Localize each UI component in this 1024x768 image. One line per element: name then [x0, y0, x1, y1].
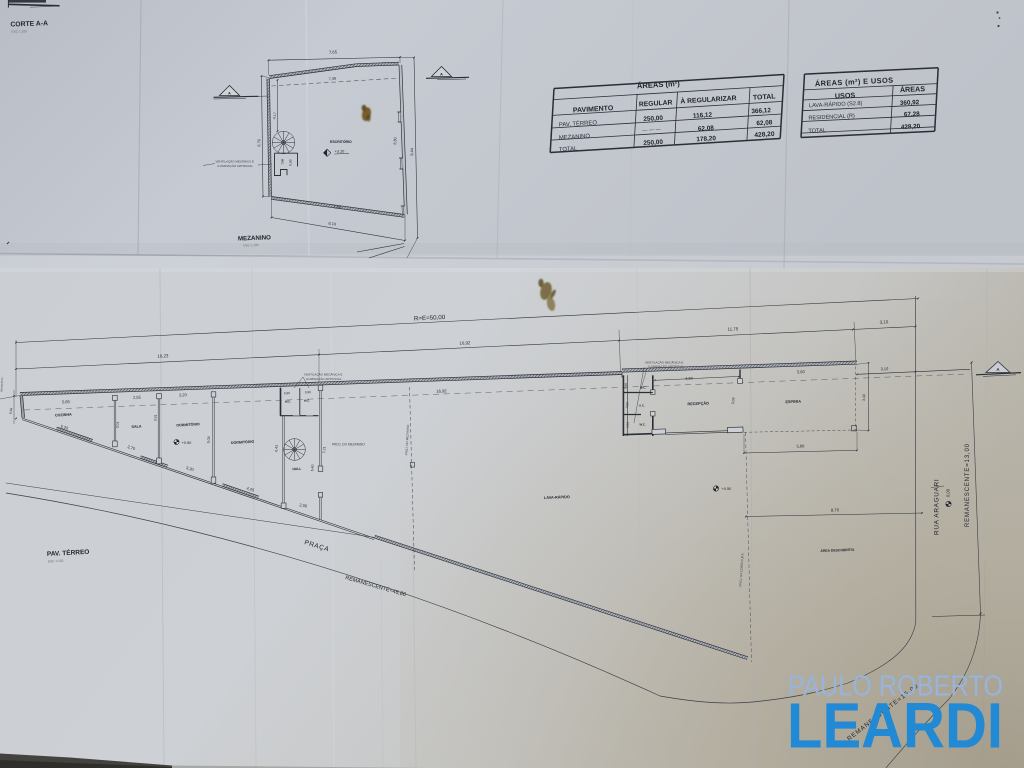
- svg-text:RECEPÇÃO: RECEPÇÃO: [687, 401, 709, 407]
- svg-text:MEZANINO: MEZANINO: [238, 234, 271, 242]
- svg-text:62,08: 62,08: [756, 119, 773, 127]
- svg-text:+0.50: +0.50: [722, 486, 733, 491]
- svg-text:2,55: 2,55: [133, 394, 142, 399]
- svg-text:W.C.: W.C.: [281, 159, 285, 165]
- svg-text:W.C.: W.C.: [640, 386, 646, 390]
- svg-text:6,79: 6,79: [256, 139, 261, 147]
- svg-text:3,40: 3,40: [862, 394, 866, 401]
- svg-text:6,43: 6,43: [274, 445, 279, 452]
- svg-text:0,90: 0,90: [305, 390, 312, 394]
- svg-text:4,30: 4,30: [685, 376, 694, 381]
- svg-text:9,44: 9,44: [409, 147, 414, 156]
- svg-text:TOTAL: TOTAL: [808, 128, 826, 135]
- svg-text:VENTILAÇÃO MECÂNICA E: VENTILAÇÃO MECÂNICA E: [645, 359, 683, 364]
- svg-text:A: A: [440, 71, 443, 76]
- svg-text:REMANESCENTE=13,00: REMANESCENTE=13,00: [965, 443, 971, 527]
- svg-text:5,65: 5,65: [62, 399, 71, 404]
- svg-text:3,10: 3,10: [880, 319, 889, 324]
- svg-text:USOS: USOS: [835, 91, 856, 101]
- svg-text:5,60: 5,60: [797, 369, 806, 374]
- svg-text:116,12: 116,12: [693, 112, 713, 120]
- svg-text:3,20: 3,20: [179, 392, 188, 397]
- svg-text:360,92: 360,92: [900, 99, 920, 107]
- svg-text:5,08: 5,08: [206, 436, 211, 443]
- svg-text:62,08: 62,08: [698, 125, 715, 133]
- svg-text:LAVA-RÁPIDO: LAVA-RÁPIDO: [544, 494, 570, 500]
- svg-text:428,20: 428,20: [754, 131, 775, 139]
- svg-text:ESC 1:100: ESC 1:100: [243, 243, 258, 248]
- svg-text:366,12: 366,12: [751, 107, 771, 115]
- svg-text:5,40: 5,40: [310, 464, 315, 471]
- svg-text:3,05: 3,05: [731, 397, 736, 404]
- svg-text:HALL: HALL: [292, 467, 301, 471]
- svg-text:7,21: 7,21: [322, 446, 327, 453]
- svg-text:VENTILAÇÃO MECÂNICA E: VENTILAÇÃO MECÂNICA E: [216, 159, 254, 164]
- svg-text:8,70: 8,70: [831, 507, 840, 512]
- svg-text:7,39: 7,39: [329, 77, 337, 82]
- svg-text:TOTAL: TOTAL: [753, 93, 777, 101]
- svg-text:18,23: 18,23: [157, 353, 169, 359]
- svg-text:TOTAL: TOTAL: [559, 146, 578, 153]
- svg-text:ILUMINAÇÃO ARTIFICIAL: ILUMINAÇÃO ARTIFICIAL: [306, 376, 342, 381]
- svg-text:0,95: 0,95: [625, 401, 630, 408]
- svg-text:3,01: 3,01: [115, 421, 120, 428]
- svg-text:7,80: 7,80: [333, 204, 342, 210]
- svg-text:ILUMINAÇÃO ARTIFICIAL: ILUMINAÇÃO ARTIFICIAL: [218, 163, 254, 168]
- svg-text:PROJ. DO MEZANINO: PROJ. DO MEZANINO: [332, 442, 365, 446]
- svg-text:0,90: 0,90: [284, 391, 291, 395]
- svg-text:3,10: 3,10: [880, 366, 889, 371]
- svg-text:250,00: 250,00: [643, 139, 663, 147]
- svg-text:A.C.: A.C.: [639, 403, 645, 407]
- svg-text:VENTILAÇÃO MECÂNICA E: VENTILAÇÃO MECÂNICA E: [304, 372, 342, 377]
- svg-text:REMANESC.: REMANESC.: [0, 376, 4, 392]
- svg-text:ILUMINAÇÃO ARTIFICIAL: ILUMINAÇÃO ARTIFICIAL: [649, 364, 685, 369]
- svg-text:0,90: 0,90: [289, 159, 293, 166]
- svg-text:16,92: 16,92: [436, 388, 447, 394]
- svg-text:W.C.: W.C.: [640, 423, 646, 427]
- svg-text:— — —: — — —: [642, 127, 662, 134]
- svg-text:ESC 1:100: ESC 1:100: [11, 29, 27, 34]
- svg-text:ESC 1:100: ESC 1:100: [48, 559, 64, 564]
- svg-text:+3.10: +3.10: [335, 149, 346, 154]
- svg-text:5,60: 5,60: [796, 443, 805, 448]
- svg-text:428,20: 428,20: [901, 123, 921, 131]
- svg-text:67,28: 67,28: [904, 111, 921, 119]
- svg-text:0,00: 0,00: [946, 488, 951, 497]
- svg-text:250,00: 250,00: [643, 115, 663, 123]
- svg-text:7,65: 7,65: [329, 49, 338, 54]
- svg-text:SALA: SALA: [131, 424, 142, 429]
- svg-text:0,90: 0,90: [624, 382, 629, 389]
- svg-text:ESCRITÓRIO: ESCRITÓRIO: [330, 139, 352, 144]
- svg-text:8,80: 8,80: [393, 137, 397, 144]
- svg-text:3,91: 3,91: [153, 414, 158, 421]
- svg-text:+0.50: +0.50: [182, 440, 193, 445]
- svg-text:178,20: 178,20: [696, 135, 716, 143]
- svg-text:LEARDI: LEARDI: [787, 690, 1003, 762]
- svg-text:CORTE A-A: CORTE A-A: [10, 20, 48, 28]
- svg-text:16,92: 16,92: [459, 340, 471, 346]
- svg-text:11,75: 11,75: [727, 326, 738, 332]
- svg-text:ESPERA: ESPERA: [785, 400, 801, 405]
- svg-text:ÁREAS: ÁREAS: [900, 84, 926, 94]
- svg-text:0,90: 0,90: [625, 421, 630, 428]
- svg-text:A: A: [228, 90, 231, 95]
